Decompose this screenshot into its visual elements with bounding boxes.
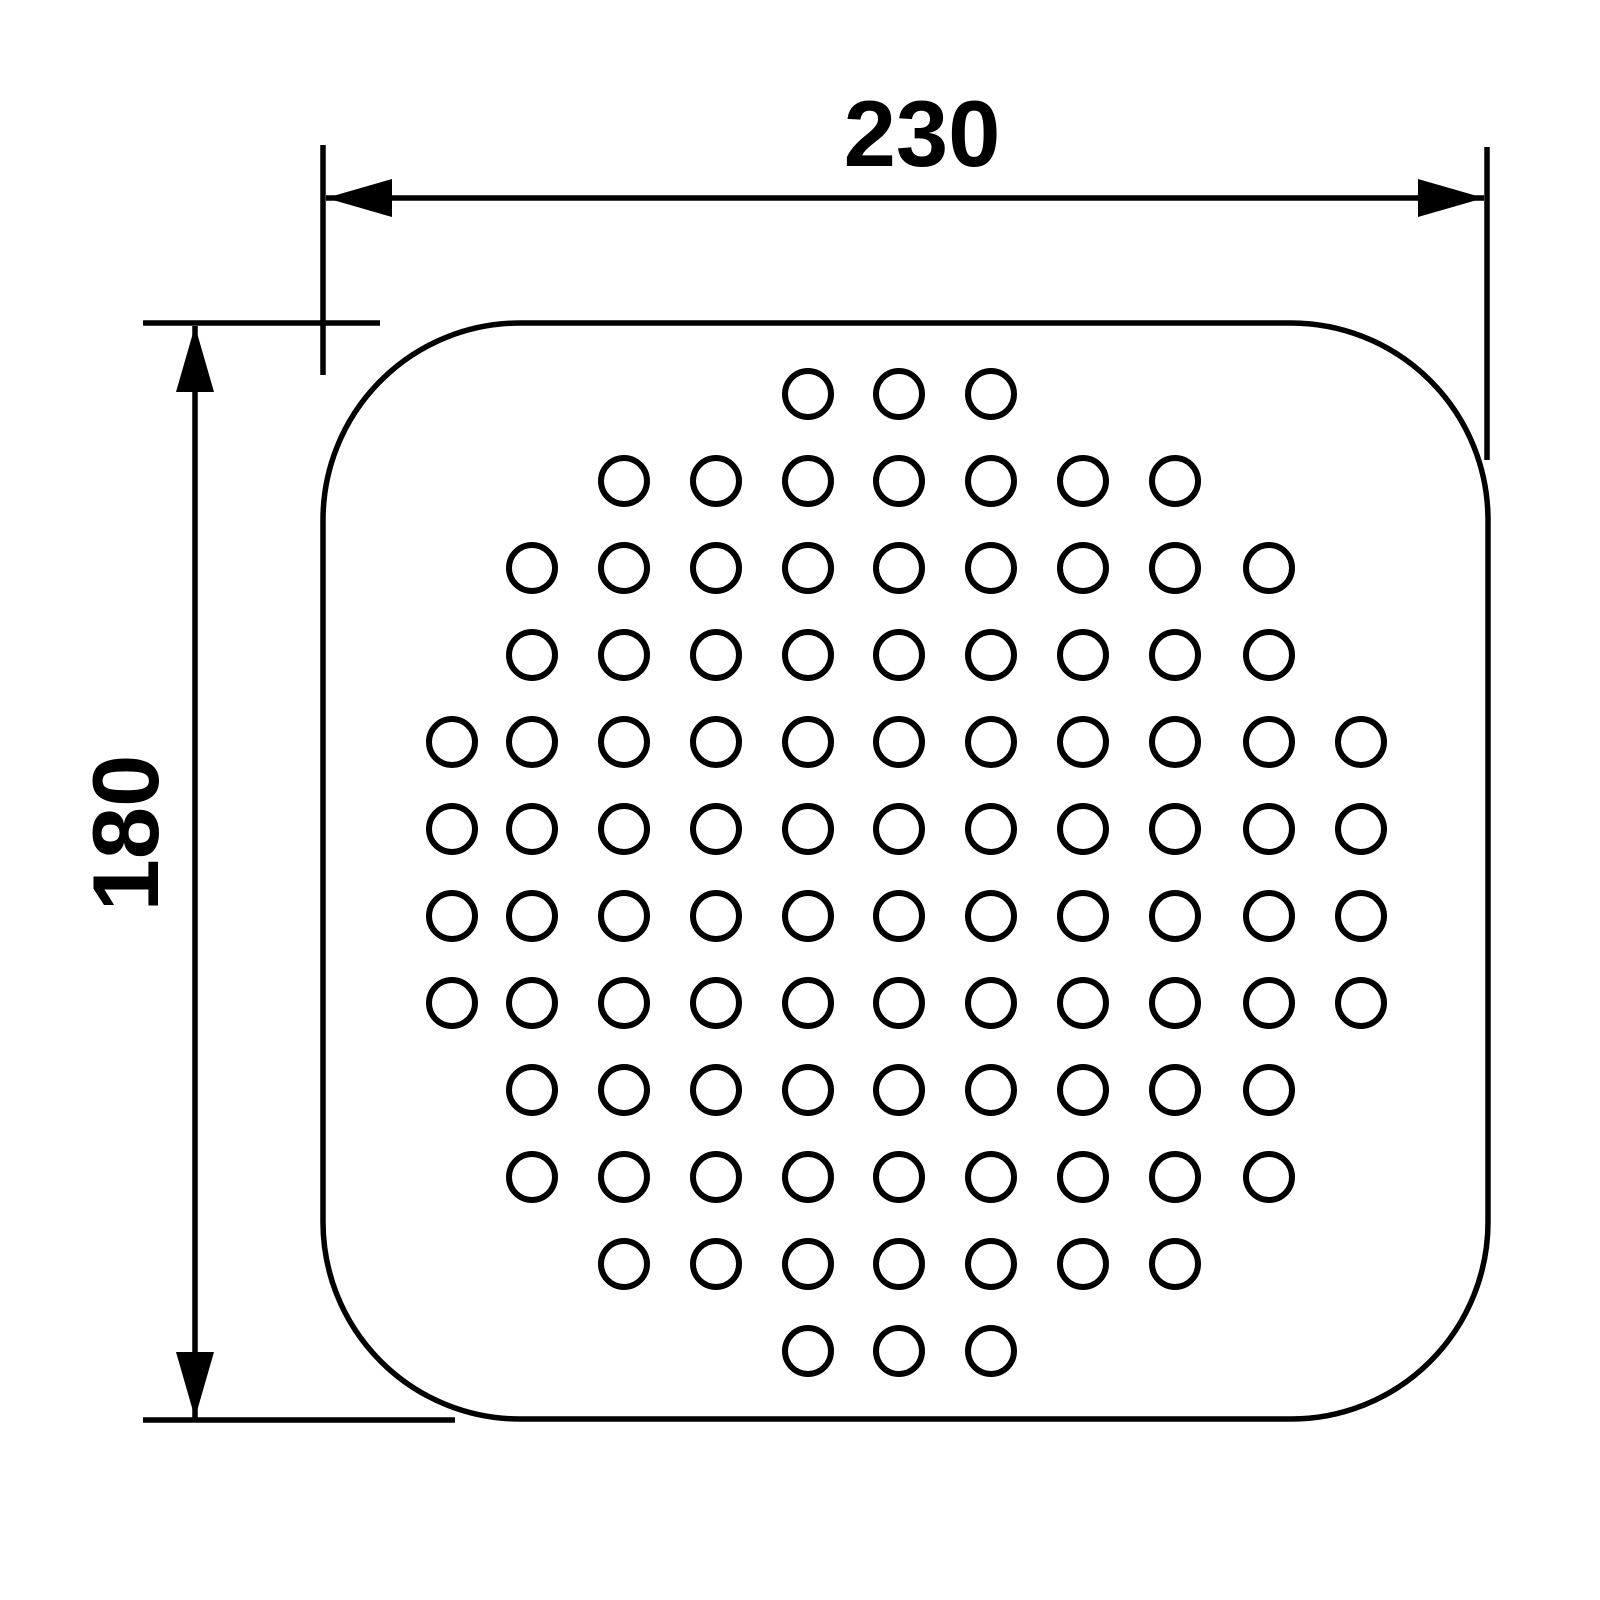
hole xyxy=(876,1328,922,1374)
hole xyxy=(1246,719,1292,765)
hole xyxy=(601,1241,647,1287)
hole xyxy=(429,719,475,765)
hole xyxy=(509,545,555,591)
hole xyxy=(968,1241,1014,1287)
hole xyxy=(1246,1067,1292,1113)
hole xyxy=(968,806,1014,852)
hole xyxy=(876,893,922,939)
hole xyxy=(601,632,647,678)
hole xyxy=(601,719,647,765)
hole xyxy=(693,806,739,852)
arrowhead-icon xyxy=(176,1352,214,1418)
hole xyxy=(693,719,739,765)
hole xyxy=(785,371,831,417)
hole xyxy=(968,719,1014,765)
arrowhead-icon xyxy=(326,179,392,217)
hole xyxy=(785,545,831,591)
hole xyxy=(785,1154,831,1200)
hole xyxy=(509,980,555,1026)
hole xyxy=(601,1067,647,1113)
hole xyxy=(601,980,647,1026)
hole xyxy=(1246,980,1292,1026)
hole xyxy=(601,806,647,852)
hole xyxy=(876,545,922,591)
hole xyxy=(876,806,922,852)
hole xyxy=(785,719,831,765)
hole xyxy=(509,893,555,939)
hole xyxy=(876,458,922,504)
hole xyxy=(429,980,475,1026)
hole xyxy=(876,632,922,678)
hole xyxy=(968,980,1014,1026)
hole xyxy=(1152,545,1198,591)
hole xyxy=(1060,458,1106,504)
technical-drawing: 230 180 xyxy=(0,0,1600,1600)
hole xyxy=(785,458,831,504)
hole xyxy=(1338,893,1384,939)
hole xyxy=(968,458,1014,504)
hole xyxy=(968,893,1014,939)
plate-outline-group xyxy=(323,323,1488,1419)
hole xyxy=(1246,893,1292,939)
hole xyxy=(785,980,831,1026)
hole xyxy=(1060,806,1106,852)
arrowhead-icon xyxy=(176,326,214,392)
arrowhead-icon xyxy=(1418,179,1484,217)
hole xyxy=(1060,719,1106,765)
hole xyxy=(1338,980,1384,1026)
hole xyxy=(968,545,1014,591)
height-dimension-group xyxy=(143,323,455,1420)
hole xyxy=(693,458,739,504)
hole xyxy=(1152,632,1198,678)
hole xyxy=(785,1241,831,1287)
hole xyxy=(876,719,922,765)
hole xyxy=(785,632,831,678)
width-dimension-label: 230 xyxy=(844,81,1001,186)
hole xyxy=(1152,893,1198,939)
hole xyxy=(1060,1154,1106,1200)
hole xyxy=(1152,1154,1198,1200)
hole xyxy=(1246,632,1292,678)
hole xyxy=(876,1154,922,1200)
hole xyxy=(876,1067,922,1113)
hole xyxy=(968,1328,1014,1374)
hole xyxy=(601,458,647,504)
hole xyxy=(509,632,555,678)
hole xyxy=(1152,719,1198,765)
hole xyxy=(785,806,831,852)
hole xyxy=(1152,1067,1198,1113)
hole xyxy=(785,893,831,939)
hole xyxy=(509,806,555,852)
hole xyxy=(693,980,739,1026)
height-dimension-label: 180 xyxy=(73,755,178,912)
width-dimension-group xyxy=(323,145,1487,460)
hole xyxy=(429,893,475,939)
hole xyxy=(601,893,647,939)
hole xyxy=(1060,632,1106,678)
hole xyxy=(968,632,1014,678)
drawing-canvas: 230 180 xyxy=(0,0,1600,1600)
hole xyxy=(785,1328,831,1374)
hole xyxy=(693,1241,739,1287)
hole xyxy=(1060,1241,1106,1287)
hole xyxy=(876,1241,922,1287)
hole xyxy=(1338,719,1384,765)
hole xyxy=(509,719,555,765)
hole xyxy=(1152,806,1198,852)
hole xyxy=(1246,806,1292,852)
hole xyxy=(693,632,739,678)
hole xyxy=(601,1154,647,1200)
holes-grid xyxy=(429,371,1384,1374)
hole xyxy=(1246,1154,1292,1200)
hole xyxy=(1338,806,1384,852)
hole xyxy=(1246,545,1292,591)
hole xyxy=(693,545,739,591)
hole xyxy=(968,1154,1014,1200)
hole xyxy=(693,1067,739,1113)
hole xyxy=(693,1154,739,1200)
hole xyxy=(785,1067,831,1113)
hole xyxy=(1152,980,1198,1026)
hole xyxy=(1060,1067,1106,1113)
hole xyxy=(1060,980,1106,1026)
hole xyxy=(1060,893,1106,939)
hole xyxy=(693,893,739,939)
hole xyxy=(509,1067,555,1113)
hole xyxy=(1152,1241,1198,1287)
hole xyxy=(509,1154,555,1200)
hole xyxy=(601,545,647,591)
hole xyxy=(1152,458,1198,504)
hole xyxy=(1060,545,1106,591)
hole xyxy=(968,371,1014,417)
hole xyxy=(968,1067,1014,1113)
hole xyxy=(429,806,475,852)
hole xyxy=(876,371,922,417)
hole xyxy=(876,980,922,1026)
plate-outline xyxy=(323,323,1488,1419)
